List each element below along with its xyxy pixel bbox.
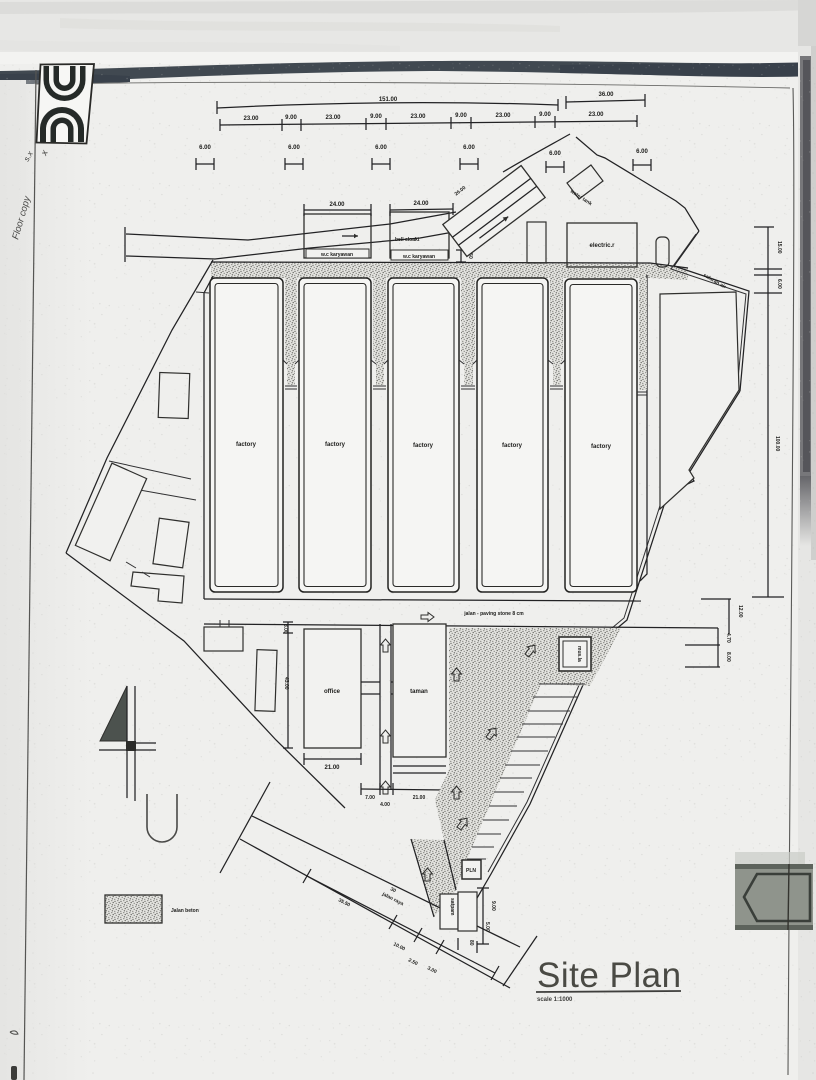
svg-text:36.00: 36.00 — [598, 92, 614, 98]
svg-text:24.00: 24.00 — [413, 201, 429, 207]
svg-text:43.00: 43.00 — [283, 677, 289, 690]
svg-text:6.00: 6.00 — [636, 149, 648, 155]
svg-text:4.00: 4.00 — [380, 802, 390, 808]
svg-text:w.c karyawan: w.c karyawan — [402, 254, 435, 260]
svg-text:24.00: 24.00 — [329, 202, 345, 208]
svg-text:PLN: PLN — [466, 868, 476, 874]
svg-text:9.00: 9.00 — [455, 113, 467, 119]
svg-text:23.00: 23.00 — [410, 114, 426, 120]
svg-text:21.00: 21.00 — [324, 765, 340, 771]
svg-text:4.70: 4.70 — [725, 633, 731, 643]
svg-text:factory: factory — [413, 443, 434, 449]
svg-text:Jalan beton: Jalan beton — [171, 908, 199, 914]
svg-text:w.c karyawan: w.c karyawan — [320, 252, 353, 258]
svg-text:23.00: 23.00 — [588, 112, 604, 118]
svg-text:bell cloakt: bell cloakt — [395, 237, 420, 243]
svg-text:Site Plan: Site Plan — [537, 956, 682, 995]
svg-text:9.00: 9.00 — [285, 115, 297, 121]
svg-text:taman: taman — [410, 689, 428, 695]
svg-text:office: office — [324, 689, 341, 695]
svg-text:factory: factory — [502, 443, 523, 449]
svg-text:80: 80 — [468, 940, 474, 946]
svg-text:factory: factory — [591, 444, 612, 450]
svg-text:5.00: 5.00 — [484, 922, 490, 932]
svg-text:9.00: 9.00 — [490, 901, 496, 911]
svg-text:6.00: 6.00 — [288, 145, 300, 151]
svg-text:100.00: 100.00 — [774, 436, 780, 452]
svg-text:6.00: 6.00 — [375, 145, 387, 151]
svg-text:factory: factory — [236, 442, 257, 448]
svg-text:9.00: 9.00 — [370, 114, 382, 120]
svg-text:12.00: 12.00 — [737, 605, 743, 618]
svg-text:6.00: 6.00 — [549, 151, 561, 157]
svg-text:jalan - paving stone 8 cm: jalan - paving stone 8 cm — [463, 611, 524, 617]
svg-text:satpam: satpam — [449, 898, 455, 916]
svg-text:factory: factory — [325, 442, 346, 448]
svg-text:15.00: 15.00 — [776, 241, 782, 254]
svg-text:6.00: 6.00 — [463, 145, 475, 151]
svg-text:8.00: 8.00 — [725, 652, 731, 662]
svg-text:6.00: 6.00 — [199, 145, 211, 151]
svg-text:23.00: 23.00 — [243, 116, 259, 122]
svg-text:151.00: 151.00 — [379, 97, 398, 103]
svg-text:21.00: 21.00 — [413, 795, 426, 801]
svg-text:9.00: 9.00 — [539, 112, 551, 118]
svg-text:3.00: 3.00 — [282, 624, 288, 634]
svg-text:mus.la: mus.la — [576, 646, 582, 662]
svg-text:scale 1:1000: scale 1:1000 — [537, 997, 573, 1003]
svg-text:23.00: 23.00 — [325, 115, 341, 121]
svg-text:electric.r: electric.r — [589, 243, 615, 249]
svg-text:23.00: 23.00 — [495, 113, 511, 119]
svg-text:7.00: 7.00 — [365, 795, 375, 801]
svg-text:6.00: 6.00 — [776, 279, 782, 289]
